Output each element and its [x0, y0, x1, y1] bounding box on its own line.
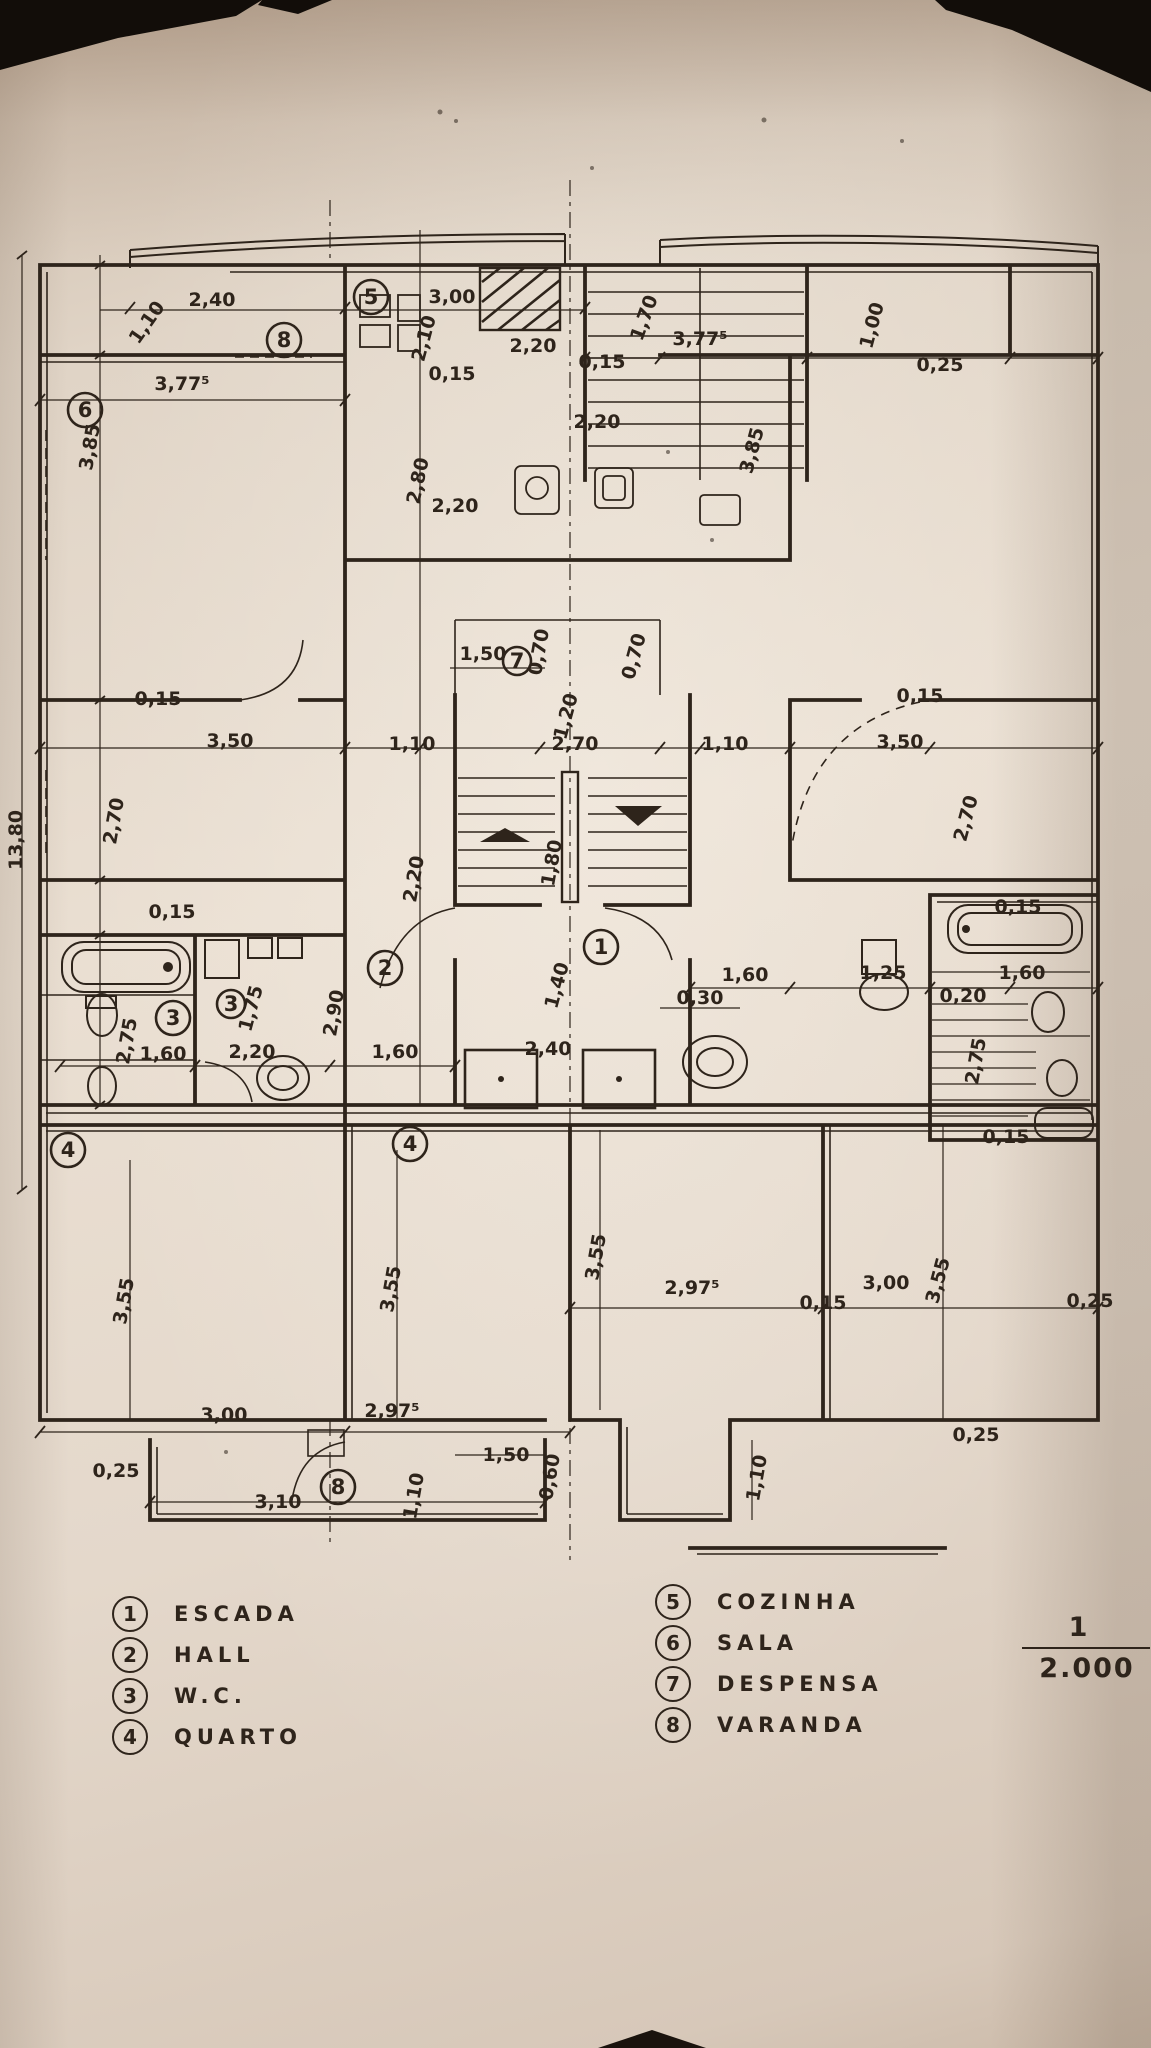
legend-column-right: 5COZINHA6SALA7DESPENSA8VARANDA	[655, 1586, 883, 1741]
dimension-label: 0,15	[149, 901, 196, 923]
legend-item: 3W.C.	[112, 1680, 302, 1712]
room-marker-number: 8	[277, 328, 292, 352]
legend-label: QUARTO	[174, 1725, 302, 1749]
legend-item: 8VARANDA	[655, 1709, 883, 1741]
dimension-label: 2,40	[525, 1038, 572, 1060]
room-marker-number: 4	[403, 1132, 418, 1156]
dimension-label: 0,25	[1067, 1290, 1114, 1312]
room-marker-number: 3	[224, 992, 239, 1016]
dimension-label: 1,10	[742, 1453, 772, 1503]
balcony-railings	[130, 234, 1098, 268]
dimension-label: 3,00	[201, 1404, 248, 1426]
dimension-label: 0,60	[535, 1452, 565, 1502]
dimension-label: 1,75	[235, 983, 268, 1034]
legend-number: 2	[112, 1637, 148, 1673]
dimension-label: 0,20	[940, 985, 987, 1007]
legend-item: 2HALL	[112, 1639, 302, 1671]
dimension-label: 3,55	[581, 1232, 611, 1282]
legend-number: 1	[112, 1596, 148, 1632]
dimension-label: 0,70	[618, 631, 651, 682]
bidet-icon	[1047, 1060, 1077, 1096]
stair-up-arrow	[480, 828, 530, 842]
legend-label: SALA	[717, 1631, 798, 1655]
dimension-label: 3,55	[376, 1264, 406, 1314]
dimension-label: 1,10	[389, 733, 436, 755]
service-stair-treads	[588, 268, 804, 480]
dimension-label: 1,60	[372, 1041, 419, 1063]
dimension-label: 0,15	[995, 896, 1042, 918]
door-swings	[205, 640, 920, 1500]
legend-item: 6SALA	[655, 1627, 883, 1659]
dimension-label: 3,55	[109, 1276, 139, 1326]
dimension-label: 3,50	[207, 730, 254, 752]
legend-label: W.C.	[174, 1684, 247, 1708]
legend-number: 4	[112, 1719, 148, 1755]
dimension-label: 0,25	[917, 354, 964, 376]
dimension-label: 2,20	[574, 411, 621, 433]
toilet-icon	[1032, 992, 1064, 1032]
dimension-label: 3,77⁵	[672, 328, 727, 350]
legend-label: VARANDA	[717, 1713, 867, 1737]
dimension-label: 1,10	[702, 733, 749, 755]
dimension-label: 1,10	[125, 297, 170, 348]
dimension-label: 2,20	[432, 495, 479, 517]
dimension-label: 1,25	[860, 962, 907, 984]
legend-label: HALL	[174, 1643, 255, 1667]
legend-number: 3	[112, 1678, 148, 1714]
dimension-label: 1,50	[460, 643, 507, 665]
scale-bar	[1022, 1647, 1150, 1649]
legend-number: 7	[655, 1666, 691, 1702]
legend-column-left: 1ESCADA2HALL3W.C.4QUARTO	[112, 1598, 302, 1753]
legend-label: COZINHA	[717, 1590, 860, 1614]
legend-label: DESPENSA	[717, 1672, 883, 1696]
duct-hatch	[480, 268, 560, 330]
dimension-label: 3,00	[863, 1272, 910, 1294]
central-staircase	[458, 772, 687, 902]
legend-number: 6	[655, 1625, 691, 1661]
basin-icon	[683, 1036, 747, 1088]
room-marker-number: 4	[61, 1138, 76, 1162]
dimension-label: 2,97⁵	[664, 1277, 719, 1299]
dimension-label: 0,25	[953, 1424, 1000, 1446]
stair-down-arrow	[615, 806, 662, 826]
dimension-label: 2,20	[229, 1041, 276, 1063]
room-marker-number: 1	[594, 935, 609, 959]
dimension-label: 1,40	[541, 960, 574, 1011]
dimension-label: 3,00	[429, 286, 476, 308]
dimension-label: 2,70	[950, 793, 983, 844]
room-marker-number: 3	[166, 1006, 181, 1030]
dimension-label: 1,50	[483, 1444, 530, 1466]
room-markers: 68571233448	[51, 280, 618, 1504]
dimension-label: 0,15	[579, 351, 626, 373]
dimension-label: 3,77⁵	[154, 373, 209, 395]
room-marker-number: 7	[510, 649, 525, 673]
scale-numerator: 1	[1022, 1612, 1151, 1643]
dimension-label: 2,20	[510, 335, 557, 357]
dimension-label: 2,70	[552, 733, 599, 755]
legend-number: 5	[655, 1584, 691, 1620]
dimension-label: 1,60	[999, 962, 1046, 984]
legend-label: ESCADA	[174, 1602, 299, 1626]
room-marker-number: 5	[364, 285, 379, 309]
room-marker-number: 8	[331, 1475, 346, 1499]
legend-item: 5COZINHA	[655, 1586, 883, 1618]
bidet-icon	[88, 1067, 116, 1105]
dimension-label: 2,97⁵	[364, 1400, 419, 1422]
bathroom-fixtures-right	[683, 905, 1093, 1138]
legend-item: 4QUARTO	[112, 1721, 302, 1753]
legend-number: 8	[655, 1707, 691, 1743]
dimension-label: 2,20	[399, 854, 429, 904]
legend-item: 7DESPENSA	[655, 1668, 883, 1700]
scale-denominator: 2.000	[1022, 1653, 1151, 1684]
dimension-label: 1,60	[722, 964, 769, 986]
dimension-label: 0,25	[93, 1460, 140, 1482]
dimension-label: 2,70	[99, 796, 129, 846]
room-marker-number: 6	[78, 398, 93, 422]
dimension-label: 1,00	[856, 300, 889, 351]
dimension-label: 1,60	[140, 1043, 187, 1065]
dimension-label: 2,40	[189, 289, 236, 311]
dimension-label: 0,15	[983, 1126, 1030, 1148]
sink-icon	[205, 940, 239, 978]
dimension-label: 3,50	[877, 731, 924, 753]
dimension-label: 0,15	[897, 685, 944, 707]
walls	[40, 265, 1098, 1548]
dimension-label: 2,80	[402, 456, 433, 506]
scale-fraction: 1 2.000	[1022, 1612, 1151, 1684]
bathroom-fixtures-left	[62, 938, 309, 1105]
dimension-label: 2,75	[961, 1036, 991, 1086]
paper-specks	[224, 110, 904, 1455]
dimension-label: 13,80	[5, 810, 27, 870]
dimension-label: 0,15	[800, 1292, 847, 1314]
room-marker-number: 2	[378, 956, 393, 980]
dimension-label: 0,15	[135, 688, 182, 710]
dimension-label: 0,15	[429, 363, 476, 385]
legend-item: 1ESCADA	[112, 1598, 302, 1630]
toilet-icon	[87, 994, 117, 1036]
dimension-label: 3,10	[255, 1491, 302, 1513]
photographed-blueprint: 2,401,103,002,100,151,701,000,252,200,15…	[0, 0, 1151, 2048]
dimension-label: 0,30	[677, 987, 724, 1009]
dimension-label: 3,55	[922, 1255, 955, 1306]
